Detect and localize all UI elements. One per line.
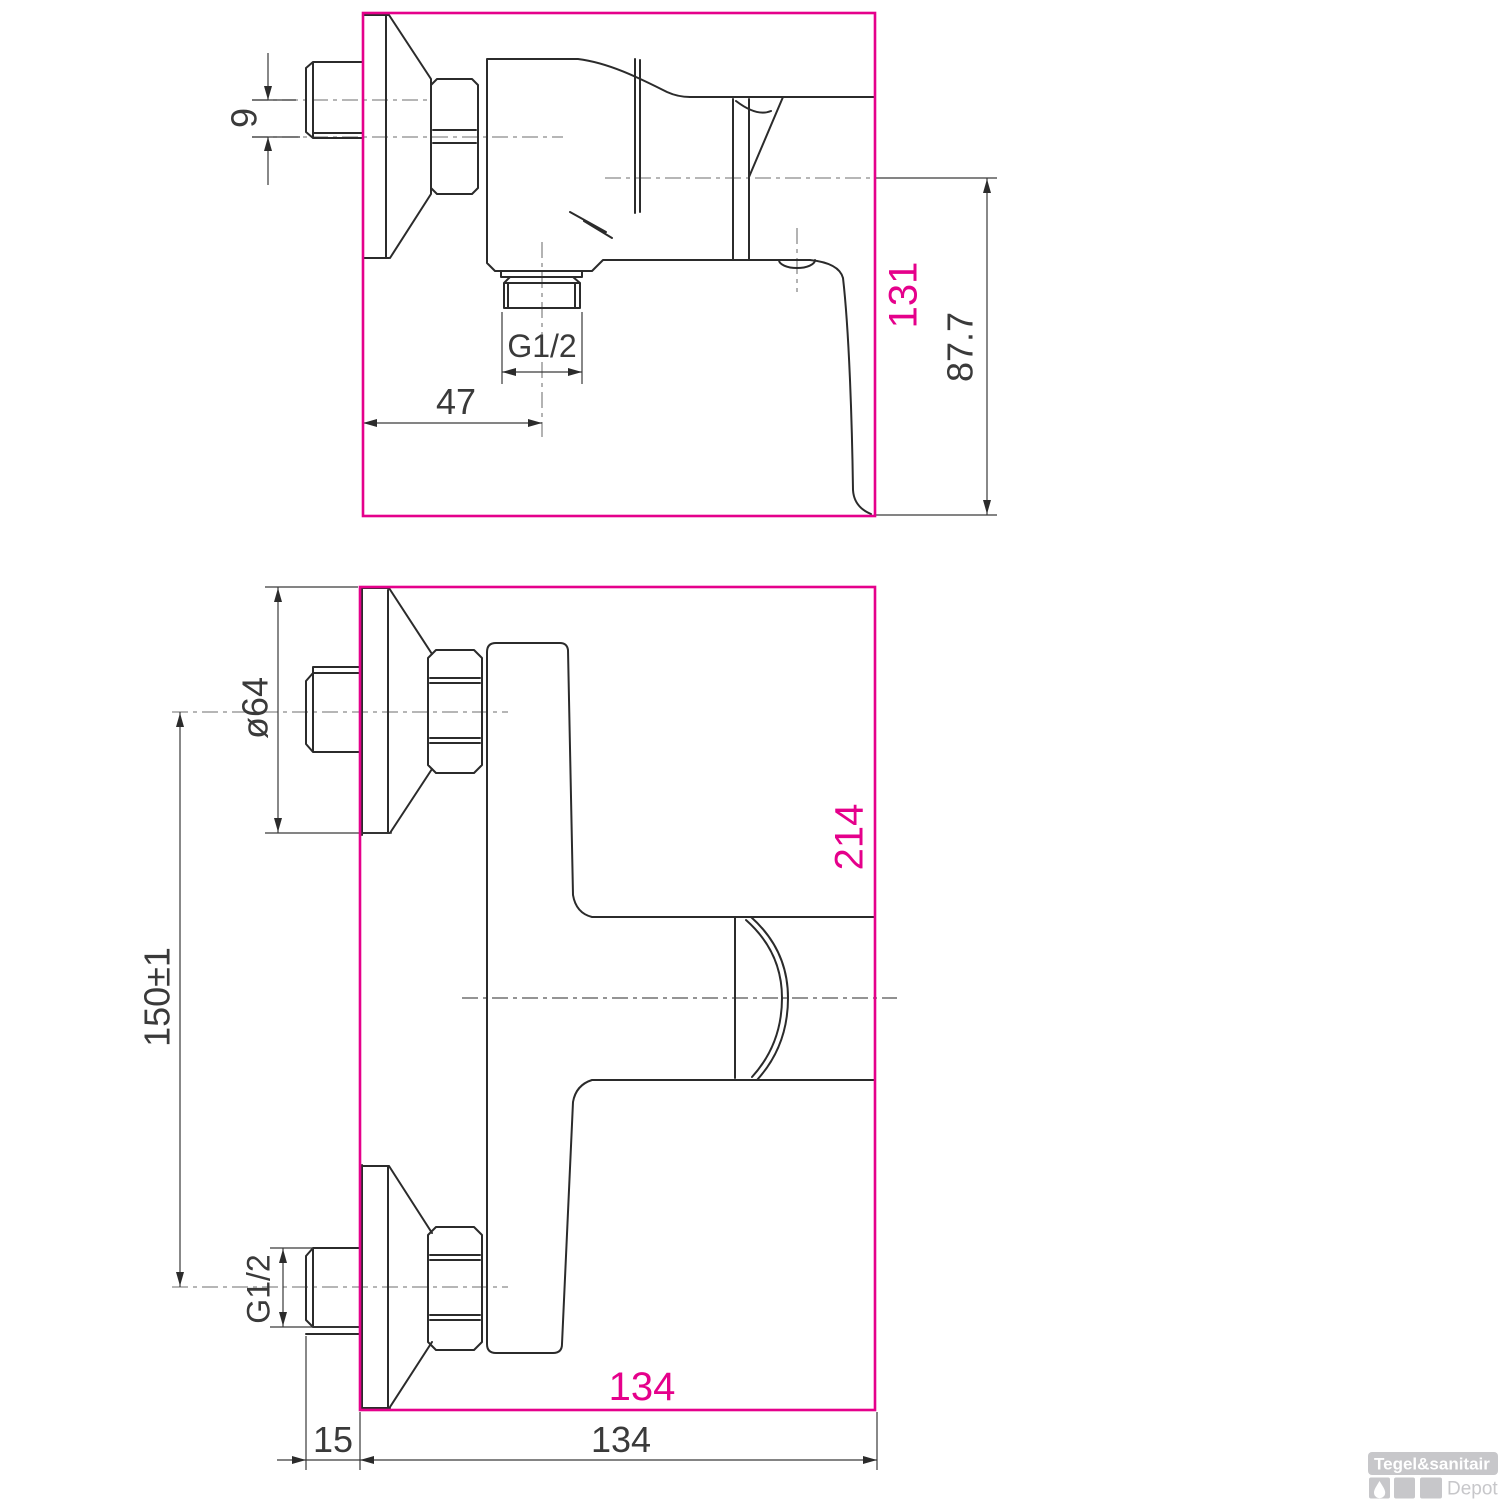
top-nipple-plan [306, 667, 360, 752]
dim-label-connection-pitch: 150±1 [137, 947, 178, 1047]
dim-label-overall-height: 131 [882, 262, 926, 329]
bottom-nipple-plan [306, 1248, 360, 1334]
dimension-inlet-offset: 9 [224, 53, 300, 185]
top-view-side: 9 G1/2 47 87.7 131 [224, 13, 997, 516]
logo-brand-text: Tegel&sanitair [1374, 1455, 1490, 1474]
bottom-view-plan: ø64 150±1 G1/2 15 134 214 134 [137, 587, 897, 1470]
technical-drawing-page: 9 G1/2 47 87.7 131 [0, 0, 1500, 1500]
dim-label-handle-drop: 87.7 [940, 312, 981, 382]
dimension-connection-pitch: 150±1 [137, 712, 184, 1287]
dim-label-outlet-thread: G1/2 [507, 328, 576, 364]
highlight-box-side-view [363, 13, 875, 516]
dim-label-flange-diameter: ø64 [235, 677, 276, 739]
top-escutcheon-plan [362, 587, 432, 835]
dim-label-overall-width-highlight: 134 [609, 1365, 676, 1409]
handle-lever-side [810, 260, 871, 514]
dim-label-outlet-depth: 47 [436, 381, 476, 422]
dimension-handle-drop: 87.7 [875, 178, 997, 515]
logo-square-3 [1420, 1478, 1442, 1499]
dim-label-overall-depth: 214 [828, 804, 872, 871]
logo-square-2 [1394, 1478, 1415, 1499]
logo-suffix-text: Depot [1447, 1479, 1498, 1500]
dimension-outlet-depth: 47 [363, 381, 542, 427]
dimension-wall-clearance-and-width: 15 134 [277, 1336, 877, 1470]
dim-label-wall-clearance: 15 [313, 1419, 353, 1460]
dim-label-inlet-thread: G1/2 [240, 1254, 276, 1323]
valve-body-side [487, 59, 810, 271]
brand-logo: Tegel&sanitair Depot [1368, 1452, 1498, 1500]
dim-label-inlet-offset: 9 [224, 108, 265, 128]
dim-label-overall-width: 134 [591, 1419, 651, 1460]
faucet-dimension-drawing: 9 G1/2 47 87.7 131 [0, 0, 1500, 1500]
bottom-hex-nut-plan [428, 1227, 482, 1350]
